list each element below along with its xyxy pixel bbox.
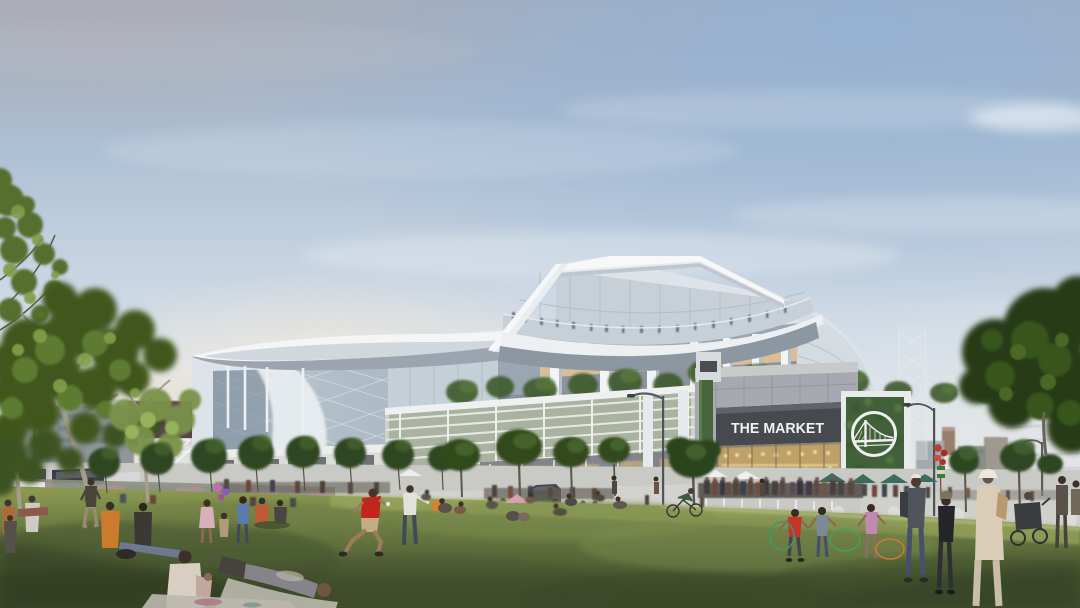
svg-text:THE MARKET: THE MARKET bbox=[731, 420, 824, 437]
